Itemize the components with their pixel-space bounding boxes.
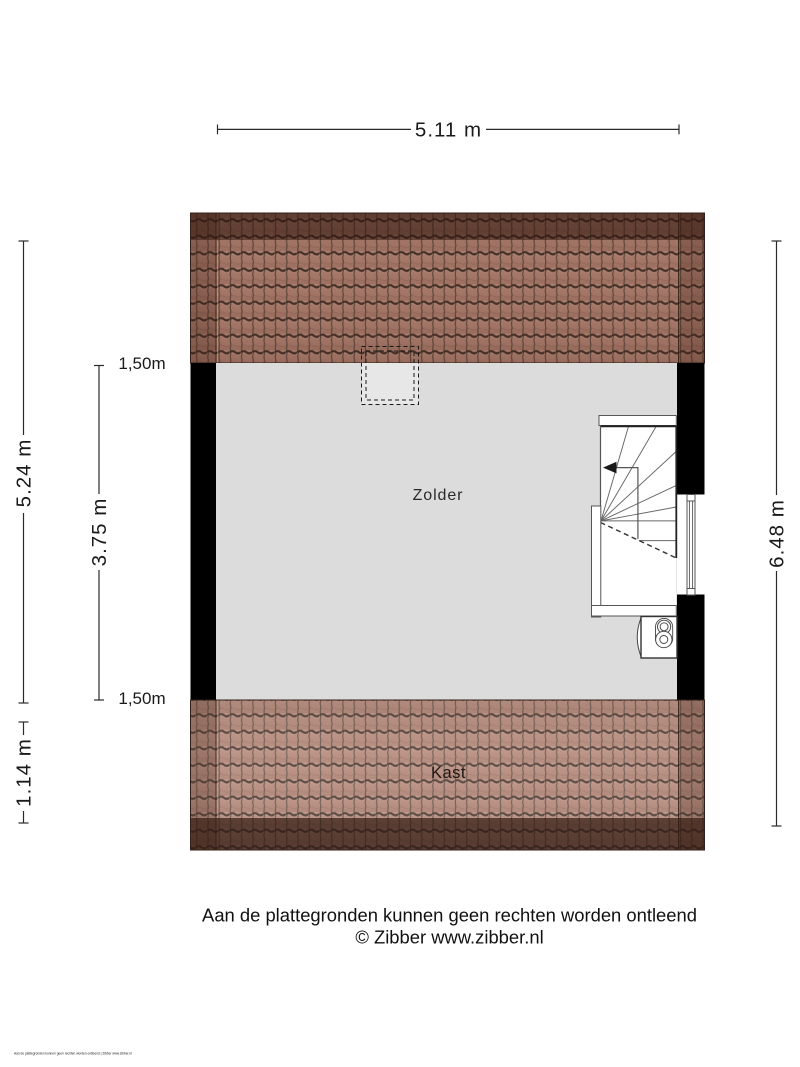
svg-text:1,50m: 1,50m xyxy=(118,354,165,373)
svg-text:© Zibber www.zibber.nl: © Zibber www.zibber.nl xyxy=(355,927,543,948)
svg-text:Aan de plattegronden kunnen ge: Aan de plattegronden kunnen geen rechten… xyxy=(14,1052,132,1056)
svg-text:Kast: Kast xyxy=(431,764,466,782)
svg-text:6.48 m: 6.48 m xyxy=(766,499,789,568)
svg-text:Zolder: Zolder xyxy=(413,487,464,504)
svg-text:1,50m: 1,50m xyxy=(118,689,165,708)
svg-text:Aan de plattegronden kunnen ge: Aan de plattegronden kunnen geen rechten… xyxy=(202,905,697,926)
svg-text:3.75 m: 3.75 m xyxy=(88,498,111,567)
svg-text:5.24 m: 5.24 m xyxy=(13,439,36,508)
svg-text:5.11 m: 5.11 m xyxy=(415,119,482,142)
svg-text:1.14 m: 1.14 m xyxy=(13,738,36,807)
